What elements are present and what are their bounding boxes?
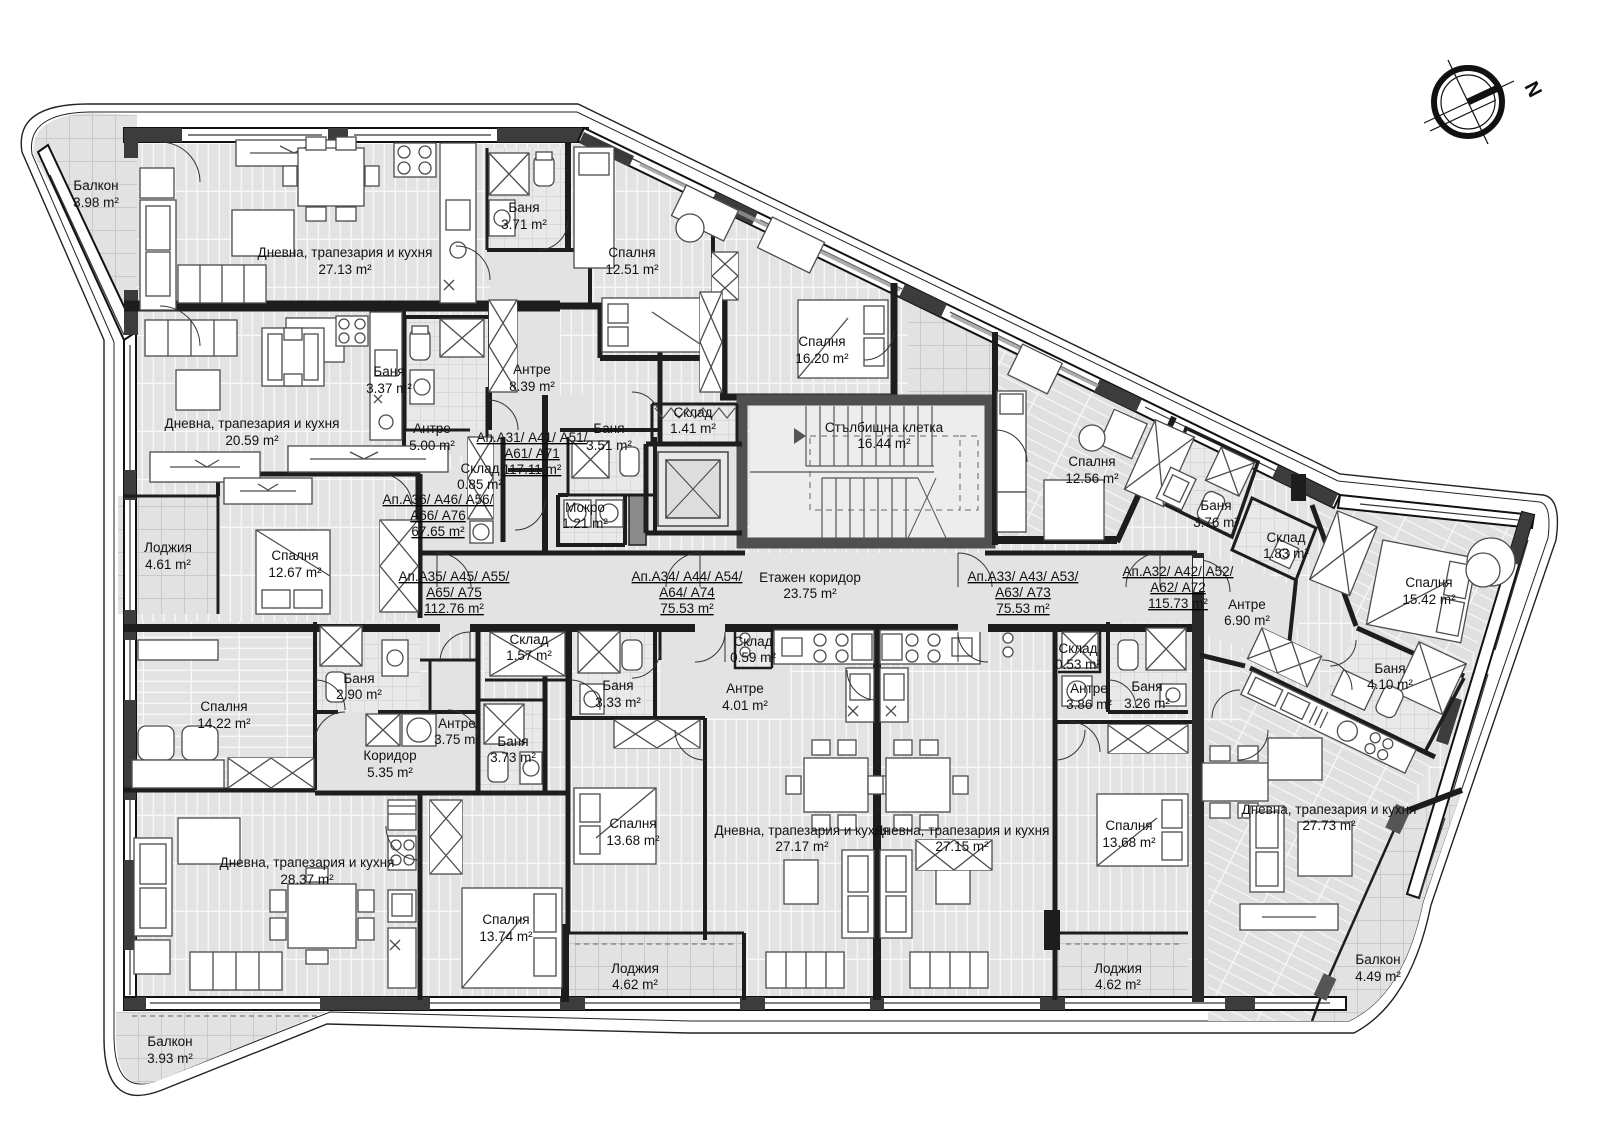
svg-text:6.90 m²: 6.90 m² [1224, 613, 1270, 628]
svg-text:А62/ А72: А62/ А72 [1150, 580, 1206, 595]
svg-text:Мокро: Мокро [565, 500, 605, 515]
svg-text:3.76 m²: 3.76 m² [1193, 515, 1239, 530]
svg-text:Антре: Антре [726, 681, 764, 696]
svg-text:Спалня: Спалня [609, 816, 656, 831]
svg-text:3.51 m²: 3.51 m² [586, 438, 632, 453]
svg-text:Склад: Склад [1266, 530, 1305, 545]
svg-text:75.53 m²: 75.53 m² [660, 601, 714, 616]
svg-text:28.37 m²: 28.37 m² [280, 872, 334, 887]
svg-text:0.53 m²: 0.53 m² [1055, 657, 1101, 672]
svg-text:3.33 m²: 3.33 m² [595, 695, 641, 710]
svg-text:8.39 m²: 8.39 m² [509, 379, 555, 394]
svg-text:4.61 m²: 4.61 m² [145, 557, 191, 572]
svg-text:13.68 m²: 13.68 m² [1102, 835, 1156, 850]
svg-text:Антре: Антре [413, 421, 451, 436]
svg-text:Лоджия: Лоджия [611, 961, 659, 976]
svg-text:27.15 m²: 27.15 m² [935, 839, 989, 854]
svg-text:3.71 m²: 3.71 m² [501, 217, 547, 232]
svg-text:Антре: Антре [1228, 597, 1266, 612]
svg-text:Баня: Баня [1200, 498, 1231, 513]
svg-text:Ап.А32/ А42/ А52/: Ап.А32/ А42/ А52/ [1123, 564, 1234, 579]
svg-text:Спалня: Спалня [482, 912, 529, 927]
svg-text:27.13 m²: 27.13 m² [318, 262, 372, 277]
svg-text:Лоджия: Лоджия [1094, 961, 1142, 976]
svg-text:Склад: Склад [1058, 641, 1097, 656]
svg-text:Ап.А31/ А41/ А51/: Ап.А31/ А41/ А51/ [477, 430, 588, 445]
svg-text:0.85 m²: 0.85 m² [457, 477, 503, 492]
svg-text:0.59 m²: 0.59 m² [730, 650, 776, 665]
svg-text:3.75 m²: 3.75 m² [434, 732, 480, 747]
svg-text:1.57 m²: 1.57 m² [506, 648, 552, 663]
svg-text:Балкон: Балкон [147, 1034, 192, 1049]
svg-text:20.59 m²: 20.59 m² [225, 433, 279, 448]
svg-text:75.53 m²: 75.53 m² [996, 601, 1050, 616]
svg-text:4.62 m²: 4.62 m² [1095, 977, 1141, 992]
svg-text:67.65 m²: 67.65 m² [411, 524, 465, 539]
svg-text:4.10 m²: 4.10 m² [1367, 677, 1413, 692]
svg-text:Спалня: Спалня [200, 699, 247, 714]
svg-text:Ап.А36/ А46/ А56/: Ап.А36/ А46/ А56/ [383, 492, 494, 507]
svg-text:115.73 m²: 115.73 m² [1148, 596, 1208, 611]
svg-text:1.83 m²: 1.83 m² [1263, 546, 1309, 561]
svg-text:3.73 m²: 3.73 m² [490, 750, 536, 765]
svg-text:5.35 m²: 5.35 m² [367, 765, 413, 780]
svg-text:4.01 m²: 4.01 m² [722, 698, 768, 713]
svg-text:Дневна, трапезария и кухня: Дневна, трапезария и кухня [715, 823, 890, 838]
svg-text:Дневна, трапезария и кухня: Дневна, трапезария и кухня [1242, 802, 1417, 817]
svg-text:1.41 m²: 1.41 m² [670, 421, 716, 436]
svg-text:1.21 m²: 1.21 m² [562, 516, 608, 531]
svg-text:Спалня: Спалня [1105, 818, 1152, 833]
svg-text:А65/ А75: А65/ А75 [426, 585, 482, 600]
svg-text:16.44 m²: 16.44 m² [857, 436, 911, 451]
svg-text:А63/ А73: А63/ А73 [995, 585, 1051, 600]
svg-text:Спалня: Спалня [608, 245, 655, 260]
svg-text:4.62 m²: 4.62 m² [612, 977, 658, 992]
svg-text:Дневна, трапезария и кухня: Дневна, трапезария и кухня [875, 823, 1050, 838]
svg-text:14.22 m²: 14.22 m² [197, 716, 251, 731]
svg-text:112.76 m²: 112.76 m² [424, 601, 484, 616]
svg-text:Коридор: Коридор [363, 748, 416, 763]
svg-text:Антре: Антре [1070, 681, 1108, 696]
svg-text:27.17 m²: 27.17 m² [775, 839, 829, 854]
svg-text:Стълбищна клетка: Стълбищна клетка [825, 420, 944, 435]
svg-text:Дневна, трапезария и кухня: Дневна, трапезария и кухня [220, 855, 395, 870]
svg-text:15.42 m²: 15.42 m² [1402, 592, 1456, 607]
svg-text:Баня: Баня [508, 200, 539, 215]
svg-text:12.67 m²: 12.67 m² [268, 565, 322, 580]
svg-text:12.51 m²: 12.51 m² [605, 262, 659, 277]
svg-text:3.93 m²: 3.93 m² [147, 1051, 193, 1066]
svg-text:Баня: Баня [1374, 661, 1405, 676]
svg-text:Баня: Баня [497, 734, 528, 749]
svg-text:Антре: Антре [513, 362, 551, 377]
svg-text:Баня: Баня [373, 364, 404, 379]
svg-text:27.73 m²: 27.73 m² [1302, 818, 1356, 833]
svg-text:Склад: Склад [733, 634, 772, 649]
svg-text:Баня: Баня [602, 678, 633, 693]
svg-text:Баня: Баня [1131, 679, 1162, 694]
svg-text:Дневна, трапезария и кухня: Дневна, трапезария и кухня [258, 245, 433, 260]
svg-text:13.68 m²: 13.68 m² [606, 833, 660, 848]
svg-text:16.20 m²: 16.20 m² [795, 351, 849, 366]
svg-text:23.75 m²: 23.75 m² [783, 586, 837, 601]
svg-text:Балкон: Балкон [73, 178, 118, 193]
svg-text:Баня: Баня [593, 421, 624, 436]
svg-text:Антре: Антре [438, 716, 476, 731]
svg-text:13.74 m²: 13.74 m² [479, 929, 533, 944]
svg-text:Спалня: Спалня [1068, 454, 1115, 469]
svg-text:Етажен коридор: Етажен коридор [759, 570, 861, 585]
svg-text:3.37 m²: 3.37 m² [366, 381, 412, 396]
svg-text:Лоджия: Лоджия [144, 540, 192, 555]
svg-text:Ап.А34/ А44/ А54/: Ап.А34/ А44/ А54/ [632, 569, 743, 584]
svg-text:Спалня: Спалня [798, 334, 845, 349]
svg-text:Ап.А35/ А45/ А55/: Ап.А35/ А45/ А55/ [399, 569, 510, 584]
svg-text:2.90 m²: 2.90 m² [336, 687, 382, 702]
svg-text:5.00 m²: 5.00 m² [409, 438, 455, 453]
svg-text:Балкон: Балкон [1355, 952, 1400, 967]
svg-text:Баня: Баня [343, 671, 374, 686]
svg-text:Склад: Склад [509, 632, 548, 647]
svg-text:3.98 m²: 3.98 m² [73, 195, 119, 210]
svg-text:А66/ А76: А66/ А76 [410, 508, 466, 523]
svg-text:117.11 m²: 117.11 m² [503, 462, 562, 477]
svg-text:Ап.А33/ А43/ А53/: Ап.А33/ А43/ А53/ [968, 569, 1079, 584]
svg-text:А61/ А71: А61/ А71 [504, 446, 560, 461]
svg-text:4.49 m²: 4.49 m² [1355, 969, 1401, 984]
svg-text:3.26 m²: 3.26 m² [1124, 696, 1170, 711]
svg-text:А64/ А74: А64/ А74 [659, 585, 715, 600]
svg-text:Дневна, трапезария и кухня: Дневна, трапезария и кухня [165, 416, 340, 431]
svg-text:Склад: Склад [673, 405, 712, 420]
svg-text:Спалня: Спалня [1405, 575, 1452, 590]
svg-text:3.86 m²: 3.86 m² [1066, 697, 1112, 712]
svg-text:12.56 m²: 12.56 m² [1065, 471, 1119, 486]
svg-text:Склад: Склад [460, 461, 499, 476]
svg-text:Спалня: Спалня [271, 548, 318, 563]
